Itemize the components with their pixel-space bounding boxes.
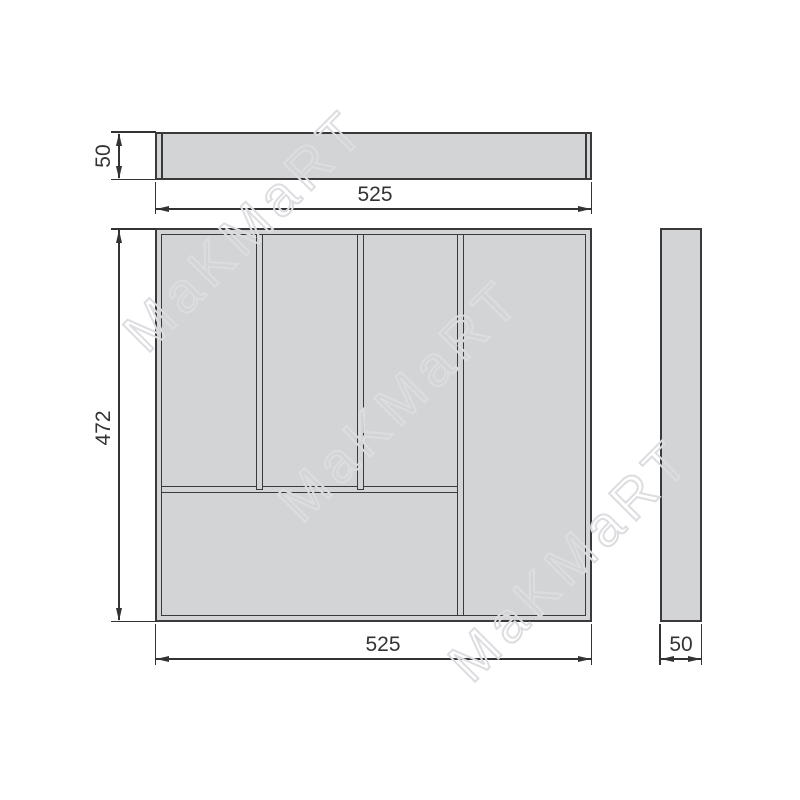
side-view-body [660,228,702,622]
front-view-left-wall-line [161,134,163,178]
plan-view-inner-walls [161,234,586,616]
plan-vertical-divider-3 [457,234,464,616]
dimension-line-front-width [156,208,591,210]
arrowhead-left [156,206,169,212]
dimension-line-plan-height [118,230,120,620]
extension-line [111,621,156,623]
arrowhead-right [578,656,591,662]
plan-vertical-divider-1 [256,234,263,490]
front-view-body [155,132,592,180]
dim-label-front-height: 50 [94,136,114,176]
dimension-line-plan-width [156,658,591,660]
arrowhead-left [661,656,674,662]
arrowhead-up [116,133,122,146]
arrowhead-left [156,656,169,662]
front-view-right-wall-line [585,134,587,178]
arrowhead-down [116,166,122,179]
arrowhead-right [688,656,701,662]
dim-label-plan-height: 472 [94,406,114,450]
dim-label-front-width: 525 [345,185,405,205]
arrowhead-right [578,206,591,212]
arrowhead-up [116,230,122,243]
technical-drawing-canvas: 50 525 472 525 50 MaKMaRT MaKMaRT MaKMaR… [0,0,800,800]
dim-label-side-width: 50 [661,635,701,655]
plan-horizontal-divider [161,486,460,493]
arrowhead-down [116,608,122,621]
plan-vertical-divider-2 [357,234,364,490]
dim-label-plan-width: 525 [353,635,413,655]
